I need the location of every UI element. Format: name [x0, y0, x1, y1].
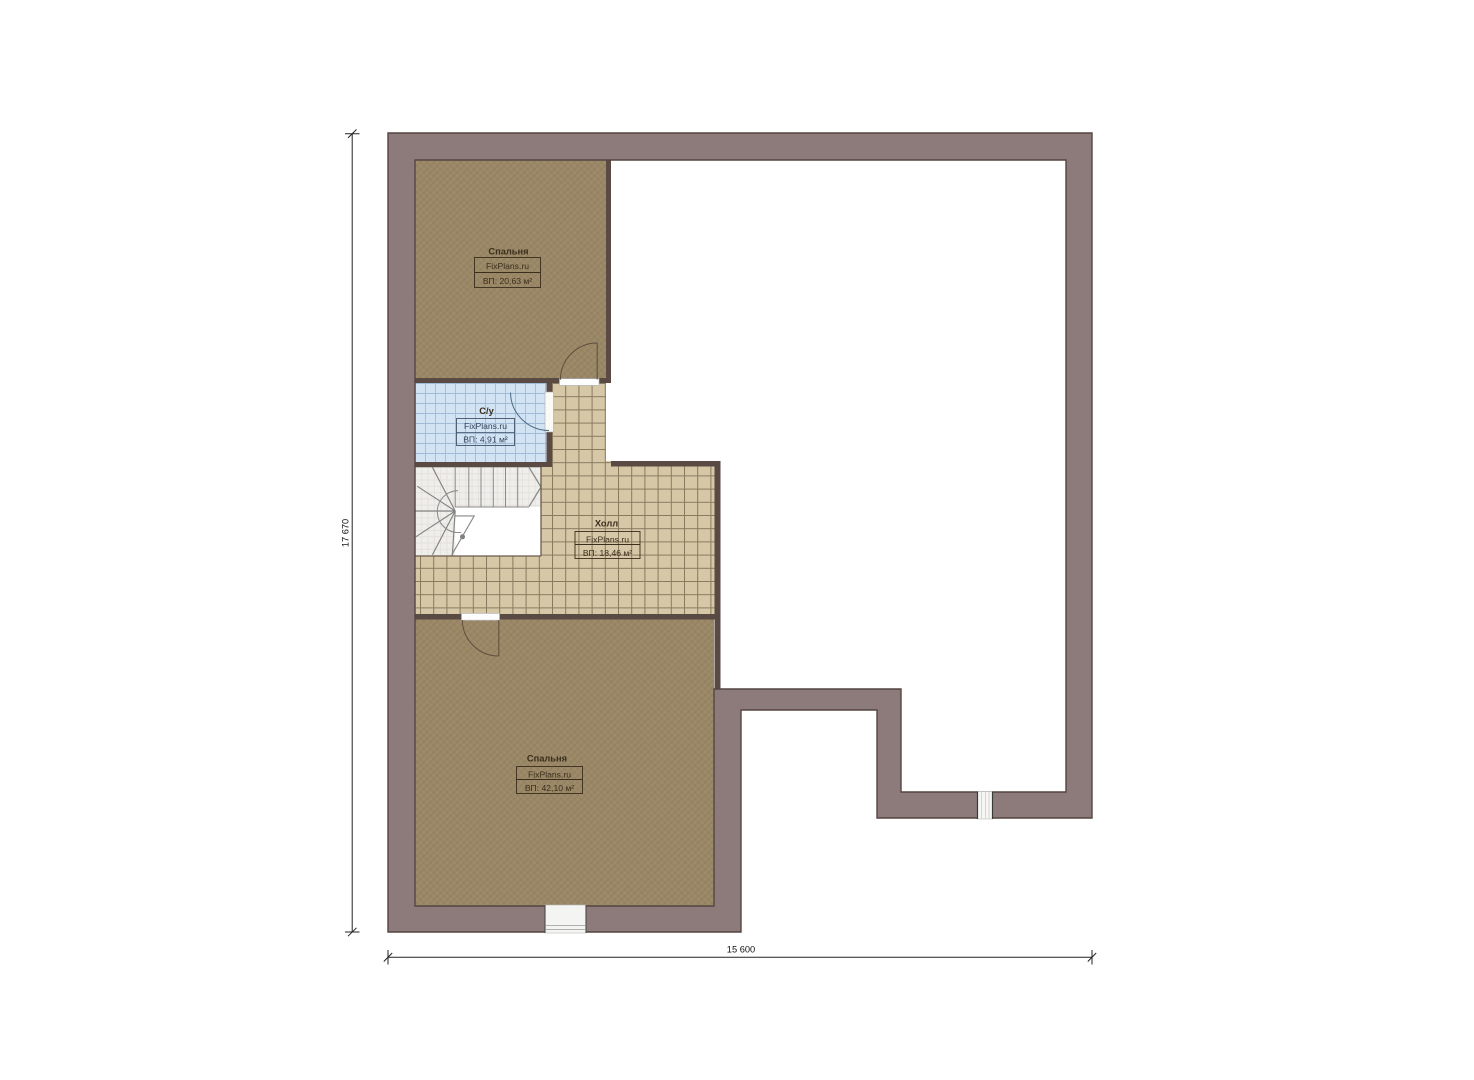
- svg-text:ВП: 4,91 м²: ВП: 4,91 м²: [463, 435, 508, 445]
- svg-text:FixPlans.ru: FixPlans.ru: [528, 770, 571, 780]
- svg-text:Холл: Холл: [595, 519, 618, 529]
- svg-text:Спальня: Спальня: [488, 247, 528, 257]
- svg-text:ВП: 20,63 м²: ВП: 20,63 м²: [483, 276, 532, 286]
- svg-text:FixPlans.ru: FixPlans.ru: [586, 535, 629, 545]
- svg-text:FixPlans.ru: FixPlans.ru: [464, 421, 507, 431]
- svg-text:15 600: 15 600: [727, 945, 755, 955]
- svg-text:17 670: 17 670: [341, 519, 351, 547]
- svg-text:ВП: 42,10 м²: ВП: 42,10 м²: [525, 783, 574, 793]
- svg-text:С/у: С/у: [479, 406, 494, 416]
- svg-text:FixPlans.ru: FixPlans.ru: [486, 261, 529, 271]
- svg-text:ВП: 18,46 м²: ВП: 18,46 м²: [583, 548, 632, 558]
- svg-text:Спальня: Спальня: [527, 754, 567, 764]
